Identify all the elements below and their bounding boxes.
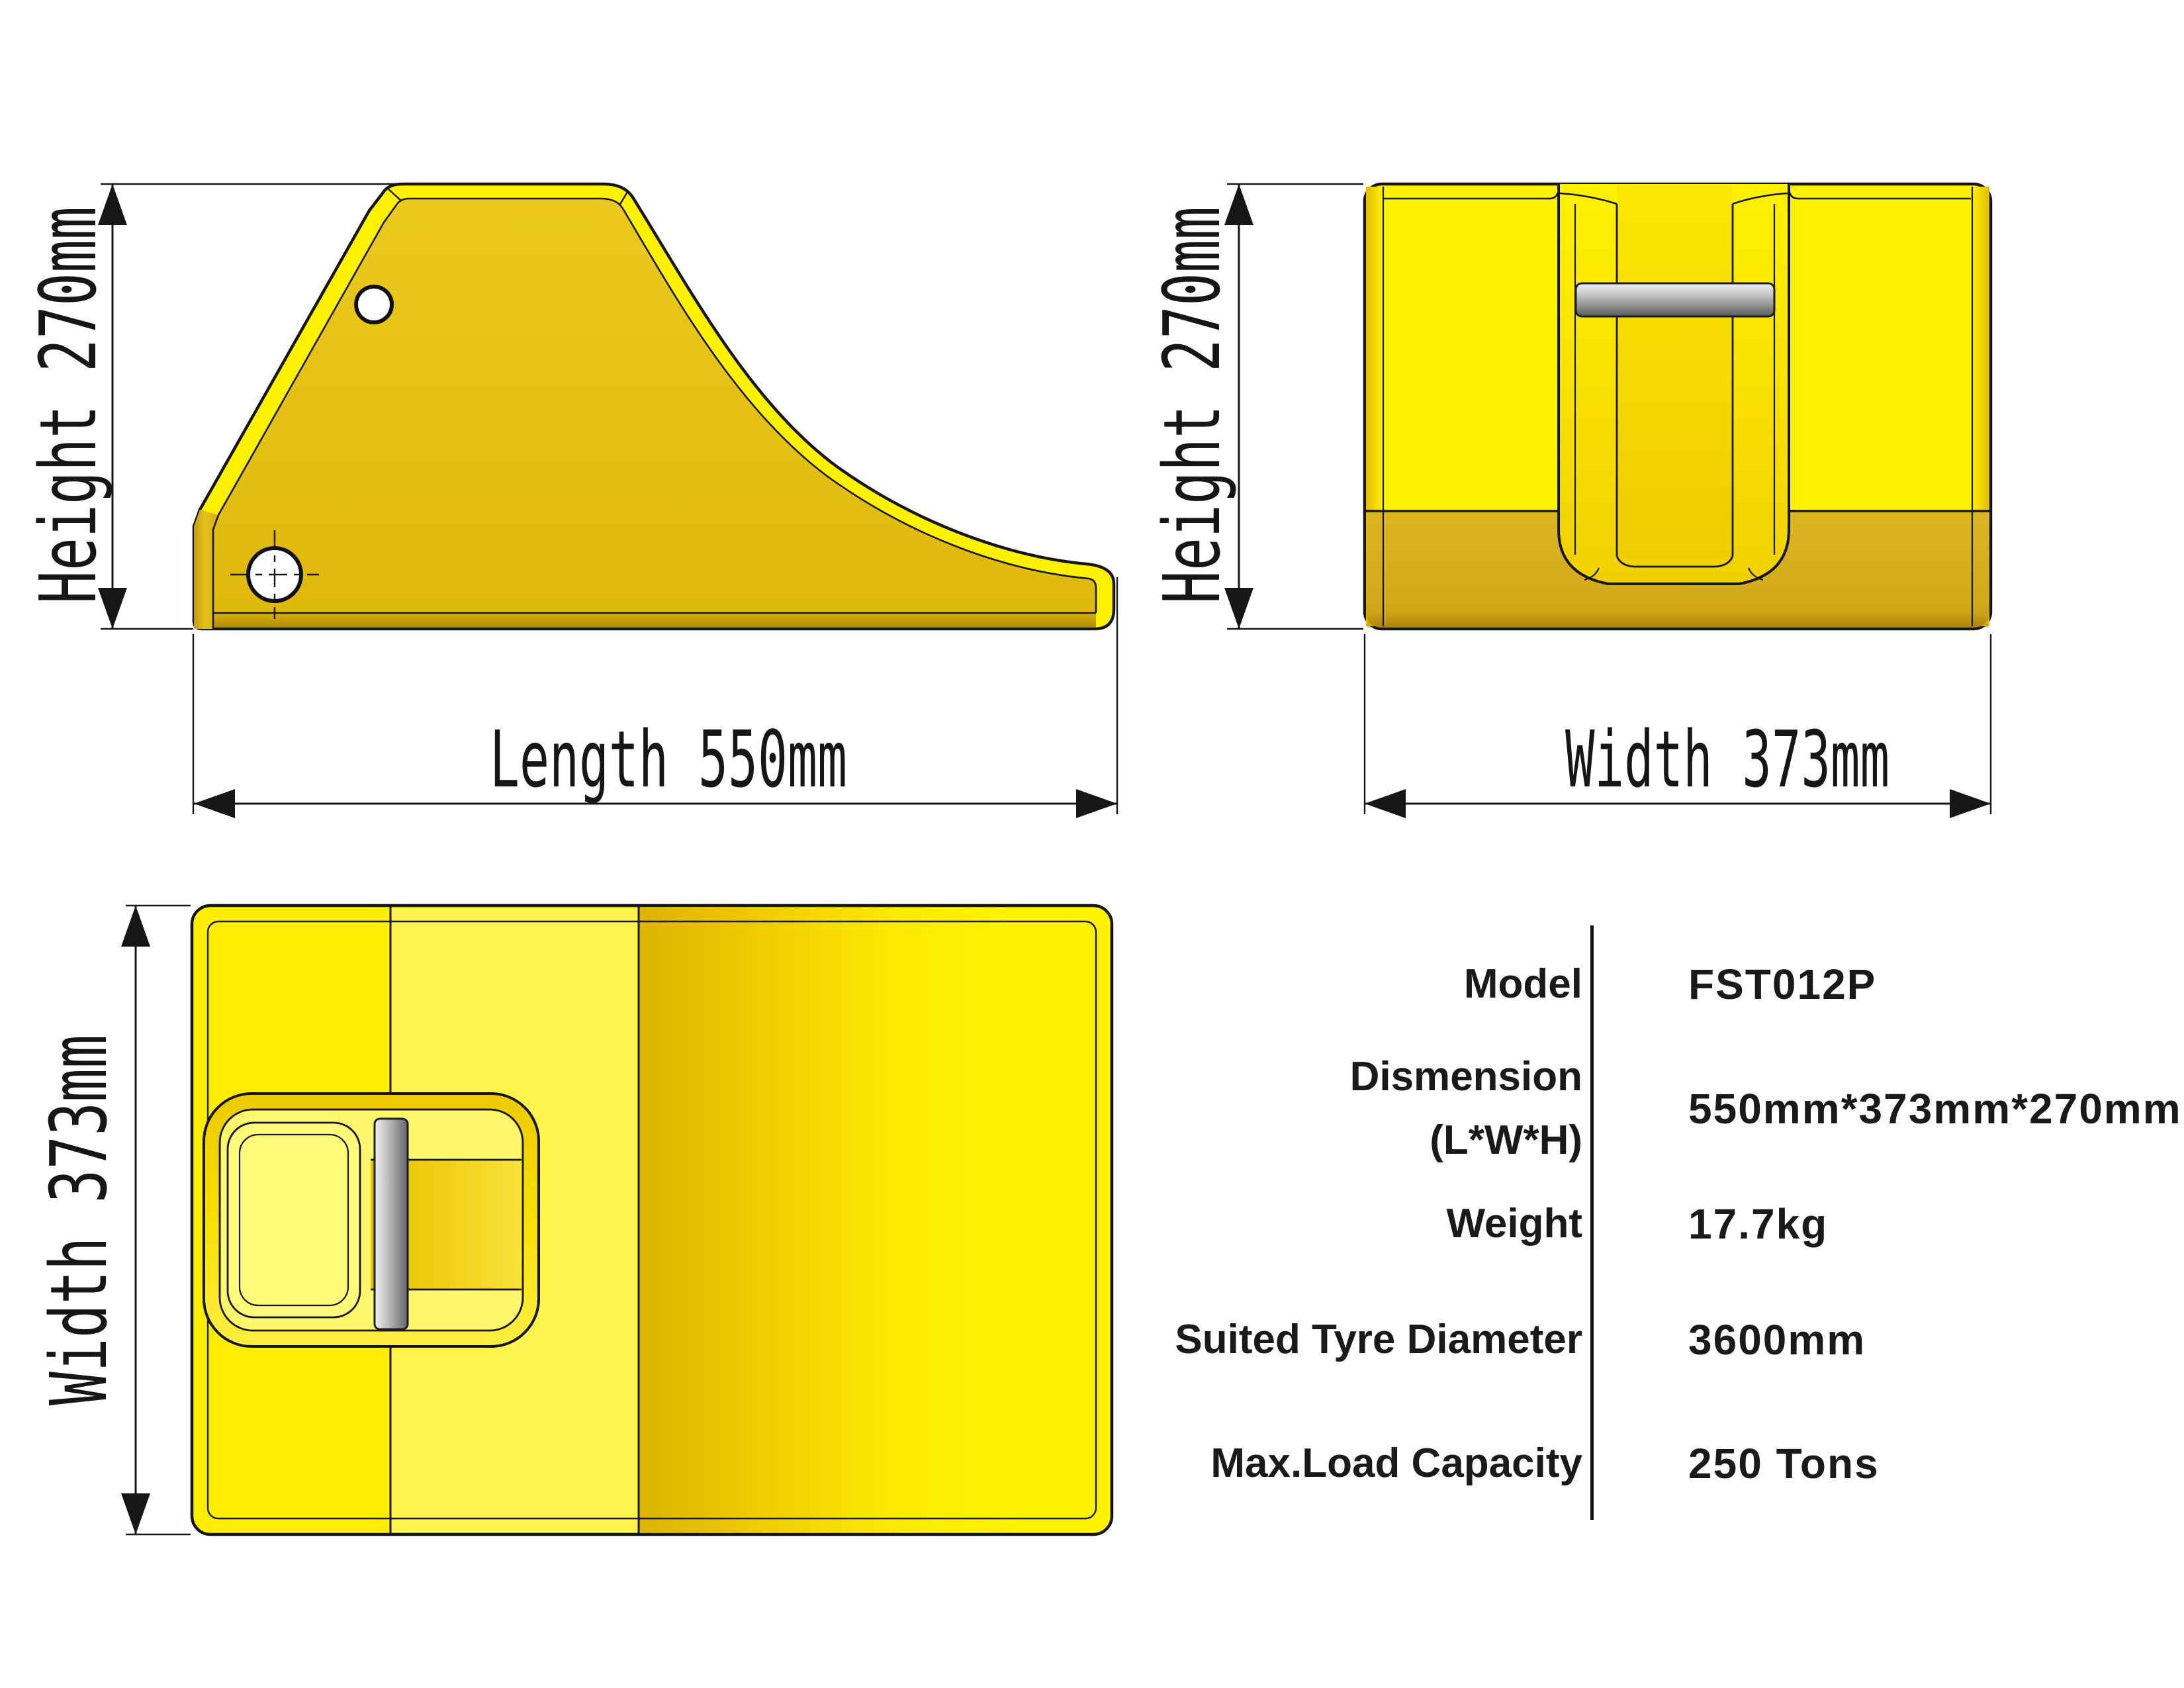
spec-value-model: FST012P xyxy=(1688,960,1876,1009)
spec-label-weight: Weight xyxy=(1447,1192,1583,1256)
spec-table: Model FST012P Dismension (L*W*H) 550mm*3… xyxy=(0,0,2184,1688)
spec-label-dimension: Dismension (L*W*H) xyxy=(1350,1045,1582,1172)
spec-value-dimension: 550mm*373mm*270mm xyxy=(1688,1084,2182,1133)
spec-label-tyre-diameter: Suited Tyre Diameter xyxy=(1175,1308,1582,1372)
spec-label-load-capacity: Max.Load Capacity xyxy=(1210,1432,1582,1495)
spec-table-divider xyxy=(1590,925,1594,1520)
spec-label-model: Model xyxy=(1464,953,1582,1016)
spec-value-load-capacity: 250 Tons xyxy=(1688,1439,1880,1488)
spec-label-dimension-line2: (L*W*H) xyxy=(1350,1109,1582,1172)
spec-value-tyre-diameter: 3600mm xyxy=(1688,1315,1866,1364)
spec-label-dimension-line1: Dismension xyxy=(1350,1045,1582,1109)
technical-drawing-sheet: Height 270mm Length 550mm Height 270mm W… xyxy=(0,0,2184,1688)
spec-value-weight: 17.7kg xyxy=(1688,1199,1828,1248)
